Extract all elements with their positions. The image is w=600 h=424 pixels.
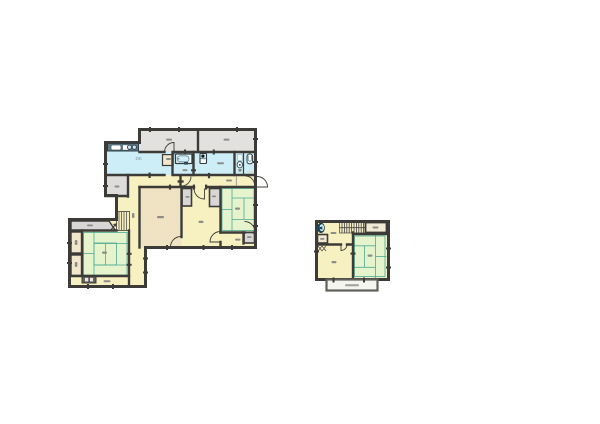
svg-text:DK: DK xyxy=(136,156,143,161)
